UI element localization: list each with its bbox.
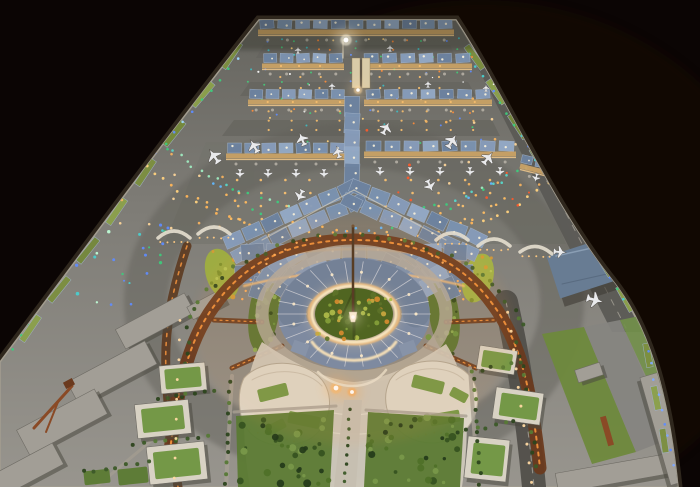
pier-row-gate-stub — [302, 73, 305, 76]
west-apron-cluster — [142, 247, 145, 250]
taxi-arc — [216, 208, 219, 211]
west-park-trees — [319, 469, 324, 474]
farfield-confetti — [263, 84, 265, 86]
west-park-trees — [286, 445, 289, 448]
west-park-trees — [289, 444, 296, 451]
east-lime-trees — [481, 255, 484, 258]
stand-leadin-lights — [450, 129, 452, 131]
street-trees — [104, 467, 108, 471]
street-lamps — [522, 424, 525, 427]
stand-leadin-lights — [319, 65, 321, 67]
horseshoe-trees — [514, 308, 518, 312]
stem-median-trees — [345, 462, 348, 465]
east-park-trees — [442, 481, 445, 484]
pier-row-roof-skylight — [288, 95, 290, 97]
street-trees — [174, 394, 178, 398]
street-trees — [475, 419, 479, 423]
stand-leadin-lights — [292, 101, 294, 103]
street-trees — [511, 419, 515, 423]
street-trees — [476, 425, 480, 429]
street-trees — [131, 443, 135, 447]
street-trees — [475, 439, 479, 443]
east-park-trees — [417, 458, 424, 465]
east-park-trees — [434, 464, 437, 467]
taxi-arc — [454, 199, 457, 202]
farfield-confetti — [305, 125, 307, 127]
taxi-arc — [471, 218, 474, 221]
taxi-arc — [251, 208, 254, 211]
pier-row-gate-stub — [408, 109, 411, 112]
stand-leadin-lights — [379, 87, 381, 89]
stand-leadin-lights — [398, 65, 400, 67]
taxi-arc — [467, 196, 470, 199]
street-trees — [475, 430, 479, 434]
east-park-trees — [451, 425, 454, 428]
west-apron-cluster — [110, 303, 113, 306]
stand-leadin-lights — [260, 179, 263, 182]
pier-row-gate-stub — [315, 163, 318, 166]
pier-row-roof-skylight — [317, 56, 319, 58]
farfield-confetti — [293, 108, 295, 110]
street-trees — [226, 441, 230, 445]
street-trees — [142, 441, 146, 445]
east-apron-floodlights — [467, 161, 470, 164]
pier-row-gate-stub — [461, 73, 464, 76]
stand-leadin-lights — [418, 87, 420, 89]
street-trees — [196, 436, 200, 440]
west-apron-cluster — [138, 233, 141, 236]
farfield-confetti — [438, 70, 440, 72]
central-warm-glow — [194, 215, 514, 445]
pier-row-roof — [228, 143, 242, 153]
campus-green-roof — [470, 442, 505, 476]
street-lamps — [517, 386, 520, 389]
street-trees — [163, 438, 167, 442]
canopy-lights — [199, 237, 201, 239]
taxi-arc — [260, 197, 263, 200]
pier-row-roof — [298, 89, 312, 99]
boulevard-trees — [530, 451, 534, 455]
taxi-arc — [526, 195, 529, 198]
taxi-arc — [201, 170, 204, 173]
terminal-east-arm-roof-skylight — [369, 207, 371, 209]
west-park-trees — [272, 434, 279, 441]
street-trees — [223, 482, 227, 486]
terminal-east-arm-roof-skylight — [439, 221, 441, 223]
stand-leadin-lights — [462, 205, 465, 208]
east-edge-lights — [650, 362, 653, 365]
stand-leadin-lights — [377, 101, 379, 103]
east-apron-floodlights — [445, 121, 448, 124]
street-trees — [92, 470, 96, 474]
west-edge-lights — [219, 79, 222, 82]
pier-row-roof-skylight — [464, 145, 466, 147]
stand-leadin-lights — [308, 179, 311, 182]
pier-row-gate-stub — [388, 73, 391, 76]
stop-bar-lights — [408, 164, 411, 167]
terminal-spine-roof-skylight — [353, 121, 355, 123]
stand-leadin-lights — [268, 120, 270, 122]
pier-row-roof-skylight — [285, 146, 287, 148]
stand-leadin-lights — [284, 192, 287, 195]
pier-row-gate-stub — [255, 109, 258, 112]
stand-leadin-lights — [339, 101, 341, 103]
pier-row-roof — [313, 53, 326, 63]
pier-row-gate-stub — [318, 73, 321, 76]
pier-row-roof-skylight — [410, 92, 412, 94]
white-sparkles — [289, 73, 291, 75]
pier-row-roof-skylight — [447, 93, 449, 95]
stand-leadin-lights — [437, 179, 440, 182]
taxi-arc — [475, 194, 478, 197]
farfield-confetti — [309, 112, 311, 114]
canopy-lights — [173, 241, 175, 243]
farfield-confetti — [350, 72, 352, 74]
stand-leadin-lights — [318, 87, 320, 89]
terminal-spine-roof-skylight — [349, 104, 351, 106]
west-apron-floodlights — [172, 197, 175, 200]
east-edge-lights — [652, 378, 655, 381]
taxi-arc — [186, 195, 189, 198]
farfield-confetti — [396, 111, 398, 113]
west-park-trees — [296, 468, 301, 473]
taxi-arc — [516, 170, 519, 173]
midfield-confetti — [307, 141, 309, 143]
stand-leadin-lights — [410, 179, 413, 182]
pier-row-roof-skylight — [267, 149, 269, 151]
taxi-arc — [260, 213, 263, 216]
east-park-trees — [440, 436, 444, 440]
terminal-spine-roof-skylight — [353, 141, 355, 143]
street-lamps — [175, 398, 178, 401]
taxi-arc — [482, 211, 485, 214]
terminal-east-arm-roof-skylight — [413, 212, 415, 214]
east-apron-floodlights — [519, 184, 522, 187]
west-edge-lights — [191, 110, 194, 113]
taxi-arc — [162, 177, 165, 180]
stop-bar-lights — [528, 191, 530, 193]
pier-row-gate-stub — [373, 161, 376, 164]
west-apron-cluster — [96, 252, 99, 255]
street-trees — [147, 459, 151, 463]
street-trees — [474, 408, 478, 412]
farfield-confetti — [471, 126, 473, 128]
east-park-trees — [373, 478, 378, 483]
west-apron-cluster — [76, 292, 80, 296]
taxi-arc — [180, 154, 183, 157]
stop-bar-lights — [485, 196, 488, 199]
pier-row-roof-skylight — [432, 145, 434, 147]
stand-leadin-lights — [290, 110, 292, 112]
stand-leadin-lights — [450, 110, 452, 112]
street-trees — [193, 392, 197, 396]
west-park-trees — [240, 448, 247, 455]
pier-row-roof — [249, 89, 262, 99]
taxi-arc — [216, 177, 219, 180]
pier-row-gate-stub — [320, 109, 323, 112]
terminal-west-arm-roof-skylight — [232, 238, 234, 240]
west-apron-floodlights — [221, 176, 224, 179]
stand-leadin-lights — [291, 120, 293, 122]
street-trees — [464, 428, 468, 432]
taxi-arc — [269, 198, 272, 201]
east-park-trees — [454, 446, 460, 452]
pier-row-roof-skylight — [505, 146, 507, 148]
pier-row-roof — [329, 53, 343, 63]
west-park-trees — [299, 447, 306, 454]
west-apron-cluster — [107, 230, 110, 233]
east-park-trees — [443, 457, 446, 460]
pier-row-gate-stub — [395, 161, 398, 164]
stand-leadin-lights — [377, 120, 379, 122]
terminal-west-arm-roof-skylight — [293, 213, 295, 215]
taxi-arc — [457, 204, 460, 207]
pier-row-roof — [315, 89, 328, 98]
canopy-lights — [159, 241, 161, 243]
pier-row-roof — [296, 53, 310, 63]
taxi-arc — [465, 195, 468, 198]
stand-leadin-lights — [402, 110, 404, 112]
west-apron-cluster — [96, 301, 98, 303]
boulevard-trees — [529, 430, 533, 434]
stand-leadin-lights — [284, 179, 287, 182]
stand-leadin-lights — [280, 65, 282, 67]
pier-row-roof-skylight — [303, 58, 305, 60]
street-trees — [203, 389, 207, 393]
stand-leadin-lights — [490, 218, 493, 221]
stand-leadin-lights — [472, 110, 474, 112]
farfield-confetti — [325, 81, 327, 83]
street-lamps — [519, 405, 522, 408]
pier-row-roof-skylight — [318, 148, 320, 150]
stand-leadin-lights — [377, 129, 379, 131]
farfield-confetti — [281, 81, 283, 83]
east-apron-floodlights — [514, 143, 517, 146]
west-park-trees — [296, 474, 300, 478]
boulevard-trees — [186, 352, 190, 356]
west-apron-floodlights — [198, 174, 201, 177]
taxi-arc — [189, 166, 192, 169]
pier-row-gate-stub — [304, 109, 307, 112]
canopy-lights — [465, 243, 467, 245]
stand-leadin-lights — [488, 231, 491, 234]
street-trees — [226, 432, 230, 436]
canopy-lights — [535, 255, 537, 257]
stand-leadin-lights — [285, 205, 288, 208]
stand-leadin-lights — [425, 120, 427, 122]
stand-leadin-lights — [237, 218, 240, 221]
taxi-arc — [495, 203, 498, 206]
west-park-trees — [288, 464, 294, 470]
west-apron-floodlights — [170, 227, 173, 230]
taxi-arc — [176, 190, 179, 193]
white-sparkles — [257, 71, 259, 73]
west-apron-cluster — [159, 261, 162, 264]
west-apron-floodlights — [170, 153, 173, 156]
taxi-arc — [449, 208, 452, 211]
midfield-confetti — [269, 117, 271, 119]
street-trees — [166, 396, 170, 400]
stand-leadin-lights — [489, 179, 492, 182]
pier-row-roof — [499, 141, 515, 152]
east-apron-floodlights — [444, 164, 447, 167]
stand-leadin-lights — [315, 101, 317, 103]
east-edge-lights — [658, 393, 661, 396]
pier-row-gate-stub — [445, 109, 448, 112]
street-lamps — [515, 367, 518, 370]
stand-leadin-lights — [472, 129, 474, 131]
west-apron-cluster — [146, 272, 149, 275]
street-trees — [183, 392, 187, 396]
pier-row-roof-skylight — [528, 160, 530, 162]
farfield-confetti — [382, 85, 384, 87]
campus-green-roof — [164, 366, 202, 389]
pier-row-gate-stub — [285, 73, 288, 76]
stand-leadin-lights — [439, 65, 441, 67]
stand-leadin-lights — [424, 101, 426, 103]
boulevard-trees — [522, 373, 526, 377]
street-lamps — [512, 348, 515, 351]
terminal-spine-roof-skylight — [353, 157, 355, 159]
pier-row-gate-stub — [439, 161, 442, 164]
farfield-confetti — [381, 70, 383, 72]
street-lamps — [175, 418, 178, 421]
taxi-arc — [243, 221, 246, 224]
pier-row-roof — [423, 141, 438, 151]
west-apron-cluster — [128, 282, 130, 284]
stand-leadin-lights — [339, 110, 341, 112]
east-park-trees — [433, 468, 439, 474]
taxi-arc — [482, 188, 485, 191]
west-park-trees — [237, 478, 244, 485]
west-edge-lights — [173, 131, 176, 134]
stand-leadin-lights — [298, 65, 300, 67]
farfield-confetti — [310, 72, 312, 74]
terminal-east-arm-roof-skylight — [391, 215, 393, 217]
horseshoe-trees — [517, 316, 521, 320]
east-edge-lights — [474, 65, 477, 68]
midfield-confetti — [362, 118, 364, 120]
west-park-trees — [277, 480, 284, 487]
west-apron-floodlights — [198, 222, 201, 225]
street-trees — [477, 451, 481, 455]
farfield-confetti — [369, 109, 371, 111]
stand-leadin-lights — [268, 129, 270, 131]
street-trees — [186, 437, 190, 441]
east-edge-lights — [663, 423, 666, 426]
street-trees — [82, 469, 86, 473]
west-park-trees — [280, 443, 284, 447]
farfield-confetti — [471, 56, 473, 58]
east-edge-lights — [647, 350, 650, 353]
stand-leadin-lights — [339, 129, 341, 131]
east-edge-lights — [672, 464, 675, 467]
pier-row-gate-stub — [528, 175, 531, 178]
pier-row-gate-stub — [417, 161, 420, 164]
street-trees — [483, 426, 487, 430]
stand-leadin-lights — [260, 192, 263, 195]
midfield-confetti — [419, 142, 421, 144]
pier-row-gate-stub — [463, 109, 466, 112]
street-trees — [156, 397, 160, 401]
west-park-trees — [264, 469, 271, 476]
street-lamps — [179, 319, 182, 322]
pier-row-roof-skylight — [271, 58, 273, 60]
canopy-lights — [213, 237, 215, 239]
west-park-trees — [316, 482, 320, 486]
east-edge-lights — [499, 101, 502, 104]
pier-row-roof — [313, 143, 327, 153]
taxi-arc — [219, 185, 222, 188]
pier-row-roof-skylight — [288, 57, 290, 59]
taxi-arc — [439, 212, 442, 215]
pier-row-roof-skylight — [462, 56, 464, 58]
taxi-arc — [208, 175, 211, 178]
stand-leadin-lights — [300, 87, 302, 89]
street-trees — [206, 434, 210, 438]
pier-row-roof — [264, 53, 277, 62]
pier-row-roof — [262, 143, 276, 153]
east-park-trees — [424, 456, 429, 461]
pier-row-roof — [476, 89, 491, 99]
east-park-trees — [425, 477, 432, 484]
west-apron-cluster — [144, 254, 147, 257]
street-trees — [494, 422, 498, 426]
west-apron-cluster — [148, 246, 150, 248]
boulevard-trees — [534, 464, 538, 468]
stand-leadin-lights — [378, 76, 380, 78]
farfield-confetti — [380, 55, 382, 57]
canopy-lights — [521, 255, 523, 257]
stand-leadin-lights — [472, 120, 474, 122]
pier-row-roof — [403, 89, 417, 98]
stand-leadin-lights — [320, 76, 322, 78]
pier-row-roof — [401, 53, 415, 63]
light-mast-glow — [344, 38, 349, 43]
pier-row-roof-skylight — [304, 149, 306, 151]
east-edge-lights — [661, 409, 664, 412]
scene-svg — [0, 0, 700, 487]
gate-glow — [356, 88, 360, 92]
terminal-east-arm-roof-skylight — [355, 187, 357, 189]
taxi-arc — [212, 182, 215, 185]
street-trees — [519, 360, 523, 364]
farfield-confetti — [350, 80, 352, 82]
pier-row-roof — [280, 53, 293, 62]
terminal-east-arm-roof-skylight — [353, 203, 355, 205]
stand-leadin-lights — [437, 192, 440, 195]
pier-row-roof-skylight — [390, 146, 392, 148]
stand-leadin-lights — [237, 205, 240, 208]
taxi-arc — [230, 217, 233, 220]
street-trees — [113, 466, 117, 470]
street-trees — [226, 450, 230, 454]
stand-leadin-lights — [316, 120, 318, 122]
stand-leadin-lights — [411, 192, 414, 195]
west-apron-cluster — [161, 229, 164, 232]
west-park-trees — [317, 442, 321, 446]
east-edge-lights — [666, 434, 669, 437]
street-trees — [509, 361, 513, 365]
taxi-arc — [234, 199, 237, 202]
farfield-confetti — [456, 71, 458, 73]
farfield-confetti — [307, 83, 309, 85]
taxi-arc — [153, 172, 156, 175]
boulevard-trees — [533, 441, 537, 445]
stand-leadin-lights — [400, 129, 402, 131]
canopy-lights — [500, 249, 502, 251]
taxi-arc — [206, 201, 209, 204]
